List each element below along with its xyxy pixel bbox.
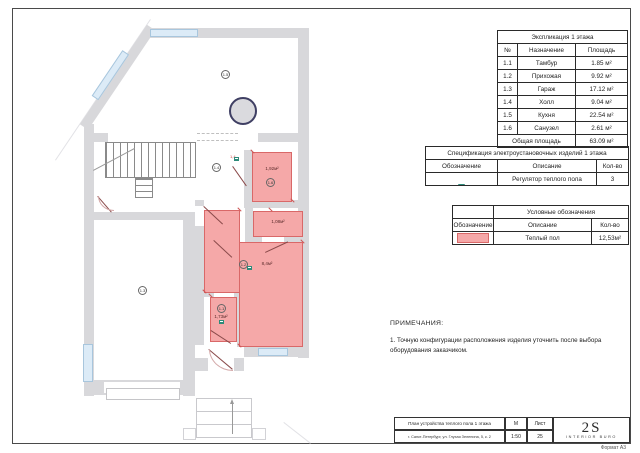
- wall: [94, 212, 184, 220]
- table-row: 1.2Прихожая9.92 м²: [498, 70, 628, 83]
- col-header-symbol: Обозначение: [453, 219, 494, 232]
- room-number-hall: 1.4: [212, 163, 221, 172]
- room-number-kitchen: 1.5: [221, 70, 230, 79]
- warm-floor-zone-bathroom: [252, 152, 292, 202]
- col-header-description: Описание: [498, 160, 597, 173]
- wall: [258, 133, 298, 142]
- notes-section: ПРИМЕЧАНИЯ: 1. Точную конфигурации распо…: [390, 320, 636, 357]
- table-row: 1.6Санузел2.61 м²: [498, 122, 628, 135]
- legend-title: Условные обозначения: [494, 206, 629, 219]
- specification-title: Спецификация электроустановочных изделий…: [426, 147, 629, 160]
- title-block: План устройства теплого пола 1 этажа М Л…: [394, 417, 630, 443]
- col-header-num: №: [498, 44, 518, 57]
- stair-direction-arrow: [232, 403, 233, 434]
- porch-steps: [196, 398, 252, 438]
- area-label-bathroom: 1,92м²: [252, 166, 292, 171]
- specification-table: Спецификация электроустановочных изделий…: [425, 146, 629, 186]
- col-header-purpose: Назначение: [518, 44, 576, 57]
- table-row: 1.4Холл9.04 м²: [498, 96, 628, 109]
- drawing-sheet: 1.5 1.4 1.3 1.2 1.1 1.6 1,92м² 1,08м² 8,…: [0, 0, 640, 453]
- logo-subtext: INTERIOR BURO: [566, 435, 617, 439]
- room-number-bathroom: 1.6: [266, 178, 275, 187]
- round-column: [229, 97, 257, 125]
- document-title: План устройства теплого пола 1 этажа: [394, 417, 505, 430]
- col-header-qty: Кол-во: [592, 219, 629, 232]
- col-header-description: Описание: [494, 219, 592, 232]
- window: [150, 29, 198, 37]
- area-label-tambour: 1,73м²: [204, 314, 238, 319]
- regulator-marker: [247, 266, 252, 270]
- logo-text: 2S: [582, 422, 602, 435]
- note-item: 1. Точную конфигурации расположения изде…: [390, 336, 636, 357]
- project-address: г. Санкт-Петербург, ул. Глухая Зеленина,…: [394, 430, 505, 443]
- porch-side: [252, 428, 266, 440]
- garage-door-panel: [106, 388, 180, 400]
- format-label: Формат А3: [601, 445, 626, 451]
- porch-side: [183, 428, 196, 440]
- legend-description: Теплый пол: [494, 232, 592, 245]
- room-number-tambour: 1.1: [217, 304, 226, 313]
- regulator-marker: [234, 157, 239, 161]
- staircase-lower-flight: [135, 178, 153, 198]
- legend-qty: 12,53м²: [592, 232, 629, 245]
- wall: [94, 133, 108, 142]
- wall: [183, 212, 195, 396]
- col-header-area: Площадь: [576, 44, 628, 57]
- table-row: Теплый пол 12,53м²: [453, 232, 629, 245]
- legend-table: Условные обозначения Обозначение Описани…: [452, 205, 629, 245]
- area-label-storage: 1,08м²: [253, 219, 303, 224]
- company-logo: 2S INTERIOR BURO: [553, 417, 630, 443]
- table-row: 1.5Кухня22.54 м²: [498, 109, 628, 122]
- regulator-marker: [219, 320, 224, 324]
- area-label-entry-hall: 8,4м²: [252, 261, 282, 266]
- warm-floor-zone-entry-main: [239, 242, 303, 347]
- sheet-value: 25: [527, 430, 553, 443]
- spec-description: Регулятор теплого пола: [498, 173, 597, 186]
- warm-floor-zone-storage: [253, 211, 303, 237]
- warm-floor-swatch: [457, 233, 489, 243]
- scale-value: 1:50: [505, 430, 527, 443]
- scale-header: М: [505, 417, 527, 430]
- table-row: 1.1Тамбур1.85 м²: [498, 57, 628, 70]
- staircase: [105, 142, 196, 178]
- table-row: Регулятор теплого пола 3: [426, 173, 629, 186]
- dashed-opening: [197, 133, 238, 141]
- wall: [244, 150, 252, 202]
- explication-title: Экспликация 1 этажа: [498, 31, 628, 44]
- sheet-header: Лист: [527, 417, 553, 430]
- spec-qty: 3: [597, 173, 629, 186]
- floor-heating-regulator-icon: [457, 175, 466, 183]
- col-header-qty: Кол-во: [597, 160, 629, 173]
- table-row: 1.3Гараж17.12 м²: [498, 83, 628, 96]
- arrow-head: [230, 399, 234, 404]
- col-header-symbol: Обозначение: [426, 160, 498, 173]
- window: [258, 348, 288, 356]
- window: [83, 344, 93, 382]
- door-opening: [195, 206, 204, 226]
- room-number-garage: 1.3: [138, 286, 147, 295]
- explication-table: Экспликация 1 этажа № Назначение Площадь…: [497, 30, 628, 148]
- notes-title: ПРИМЕЧАНИЯ:: [390, 320, 636, 327]
